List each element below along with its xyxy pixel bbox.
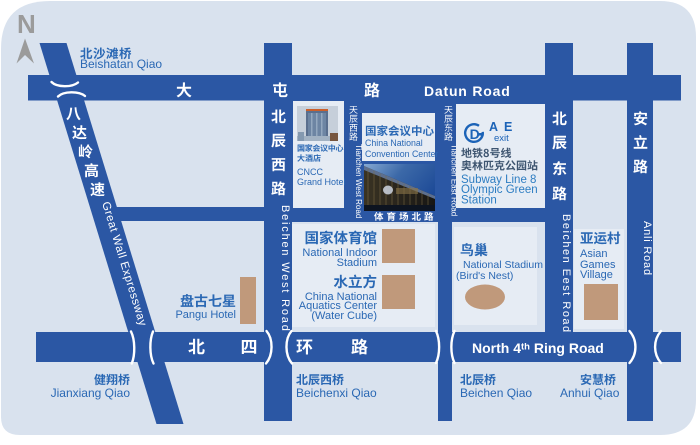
svg-text:(Water Cube): (Water Cube) bbox=[311, 310, 377, 322]
svg-text:CNCC: CNCC bbox=[297, 167, 323, 177]
svg-text:North 4th Ring Road: North 4th Ring Road bbox=[472, 340, 604, 356]
svg-text:exit: exit bbox=[494, 133, 509, 144]
svg-text:N: N bbox=[17, 9, 36, 39]
svg-text:D: D bbox=[470, 126, 480, 142]
svg-text:Anli Road: Anli Road bbox=[641, 221, 653, 276]
svg-text:Beichen Qiao: Beichen Qiao bbox=[460, 386, 532, 400]
svg-text:Stadium: Stadium bbox=[337, 257, 377, 269]
svg-text:Jianxiang Qiao: Jianxiang Qiao bbox=[51, 386, 131, 400]
svg-text:Anhui Qiao: Anhui Qiao bbox=[560, 386, 620, 400]
svg-text:Grand Hotel: Grand Hotel bbox=[297, 177, 346, 187]
svg-text:Village: Village bbox=[580, 269, 613, 281]
svg-text:(Bird's Nest): (Bird's Nest) bbox=[456, 270, 513, 282]
svg-text:Beichen Eest Road: Beichen Eest Road bbox=[560, 214, 572, 334]
svg-text:Beichenxi Qiao: Beichenxi Qiao bbox=[296, 386, 377, 400]
svg-text:Tianchen West Road: Tianchen West Road bbox=[354, 144, 363, 218]
svg-text:Station: Station bbox=[461, 195, 497, 207]
svg-text:China National: China National bbox=[365, 138, 423, 148]
svg-text:Beishatan Qiao: Beishatan Qiao bbox=[80, 57, 162, 71]
svg-text:A E: A E bbox=[489, 120, 514, 134]
svg-text:Beichen West Road: Beichen West Road bbox=[279, 205, 291, 333]
svg-text:Convention Center: Convention Center bbox=[365, 149, 438, 159]
svg-text:Pangu Hotel: Pangu Hotel bbox=[175, 309, 236, 321]
svg-text:Datun Road: Datun Road bbox=[424, 83, 511, 99]
